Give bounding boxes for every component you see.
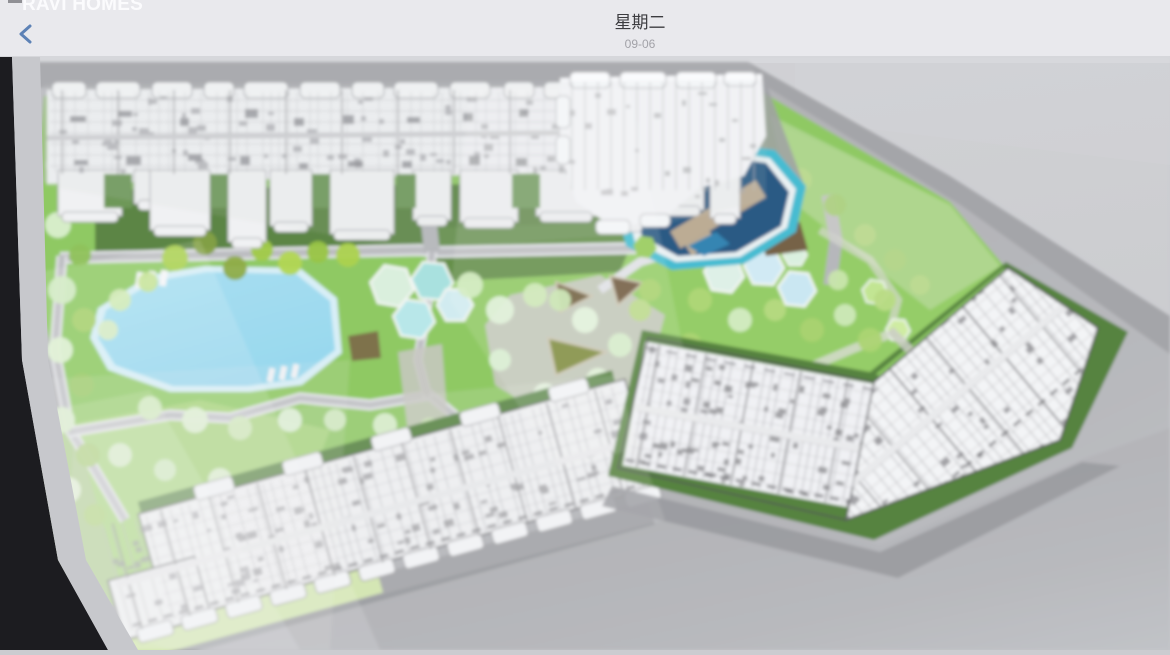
svg-text:09-06: 09-06: [625, 37, 656, 51]
svg-text:星期二: 星期二: [615, 13, 666, 32]
svg-text:RAVI HOMES: RAVI HOMES: [22, 0, 143, 15]
